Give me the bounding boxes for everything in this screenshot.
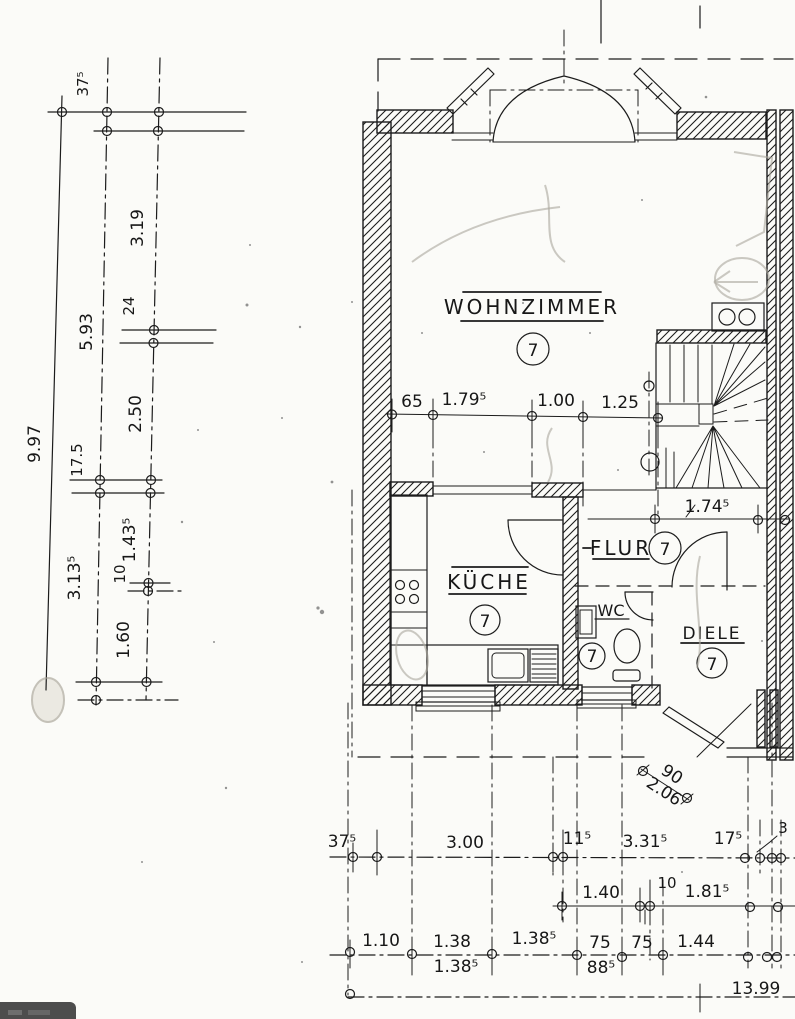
room-number: 7	[660, 540, 671, 560]
dim-label: 88⁵	[587, 958, 615, 978]
dim-label: 24	[120, 296, 138, 315]
shaft-box	[712, 303, 764, 331]
dim-label: 2.50	[126, 395, 146, 433]
dim-label: 1.25	[601, 393, 639, 413]
balcony-strut	[634, 68, 681, 114]
wc-sink	[576, 606, 596, 638]
door-swing-arc	[625, 592, 653, 620]
kitchen-sink	[488, 649, 528, 682]
dim-label: 65	[401, 392, 423, 412]
door-swing-arc	[493, 76, 564, 142]
dim-label: 1.38	[433, 932, 471, 952]
dim-label: 1.38⁵	[434, 957, 479, 977]
dim-label: 13.99	[732, 979, 781, 999]
dim-label: 11⁵	[563, 829, 591, 849]
left-dimension-chain: 37⁵ 3.19 24 5.93 9.97 2.50 17.5 1.43⁵ 3.…	[25, 58, 246, 705]
room-number: 7	[587, 647, 598, 667]
floor-plan-scan: 37⁵ 3.19 24 5.93 9.97 2.50 17.5 1.43⁵ 3.…	[0, 0, 795, 1019]
dim-label: 5.93	[77, 313, 97, 351]
room-label-wohnzimmer: WOHNZIMMER	[444, 295, 620, 319]
balcony-strut	[447, 68, 494, 114]
dim-label: 17⁵	[714, 829, 742, 849]
staircase	[641, 343, 768, 490]
dim-label: 1.10	[362, 931, 400, 951]
floor-plan-drawing: 37⁵ 3.19 24 5.93 9.97 2.50 17.5 1.43⁵ 3.…	[0, 0, 795, 1019]
flur-dimension: 1.74⁵	[588, 497, 790, 533]
dim-label: 3	[778, 819, 788, 837]
bottom-dimension-chains: 37⁵ 3.00 11⁵ 3.31⁵ 17⁵ 3 1.40 10 1.81⁵ 1…	[328, 703, 795, 1012]
fold-marks	[601, 0, 700, 43]
dim-label: 37⁵	[328, 832, 356, 852]
room-label-flur: FLUR	[590, 536, 652, 560]
door-swing-arc	[564, 76, 635, 142]
watermark-box	[0, 1002, 76, 1019]
dim-label: 1.38⁵	[512, 929, 557, 949]
room-label-diele: DIELE	[682, 624, 741, 644]
party-wall	[780, 110, 793, 760]
stove-burner	[410, 581, 419, 590]
entrance-door	[663, 707, 724, 748]
dim-label: 3.00	[446, 833, 484, 853]
dim-label: 1.81⁵	[685, 882, 730, 902]
dim-label: 75	[589, 933, 611, 953]
dim-label: 1.00	[537, 391, 575, 411]
dim-label: 3.19	[128, 209, 148, 247]
dim-label: 10	[111, 564, 129, 583]
stove-burner	[396, 595, 405, 604]
dim-label: 1.40	[582, 883, 620, 903]
toilet	[614, 629, 640, 663]
room-number: 7	[707, 655, 718, 675]
room-number: 7	[480, 612, 491, 632]
dim-label: 37⁵	[74, 71, 92, 96]
dim-label: 17.5	[68, 443, 86, 476]
dim-label: 3.31⁵	[623, 832, 668, 852]
dim-label: 1.74⁵	[685, 497, 730, 517]
stove-burner	[410, 595, 419, 604]
kitchen-window	[422, 686, 495, 702]
dim-label: 3.13⁵	[65, 556, 85, 601]
kitchen-counter	[390, 495, 427, 685]
dim-label: 10	[657, 874, 676, 892]
room-number: 7	[528, 341, 539, 361]
dim-label: 9.97	[25, 425, 45, 463]
dim-label: 1.44	[677, 932, 715, 952]
room-label-kueche: KÜCHE	[447, 570, 531, 594]
pencil-arrow	[714, 271, 758, 292]
dim-label: 1.79⁵	[442, 390, 487, 410]
dim-label: 1.43⁵	[120, 518, 140, 563]
stove-burner	[396, 581, 405, 590]
dim-label: 75	[631, 933, 653, 953]
party-wall	[767, 110, 776, 760]
room-label-wc: WC	[598, 601, 625, 620]
dim-label: 1.60	[114, 621, 134, 659]
